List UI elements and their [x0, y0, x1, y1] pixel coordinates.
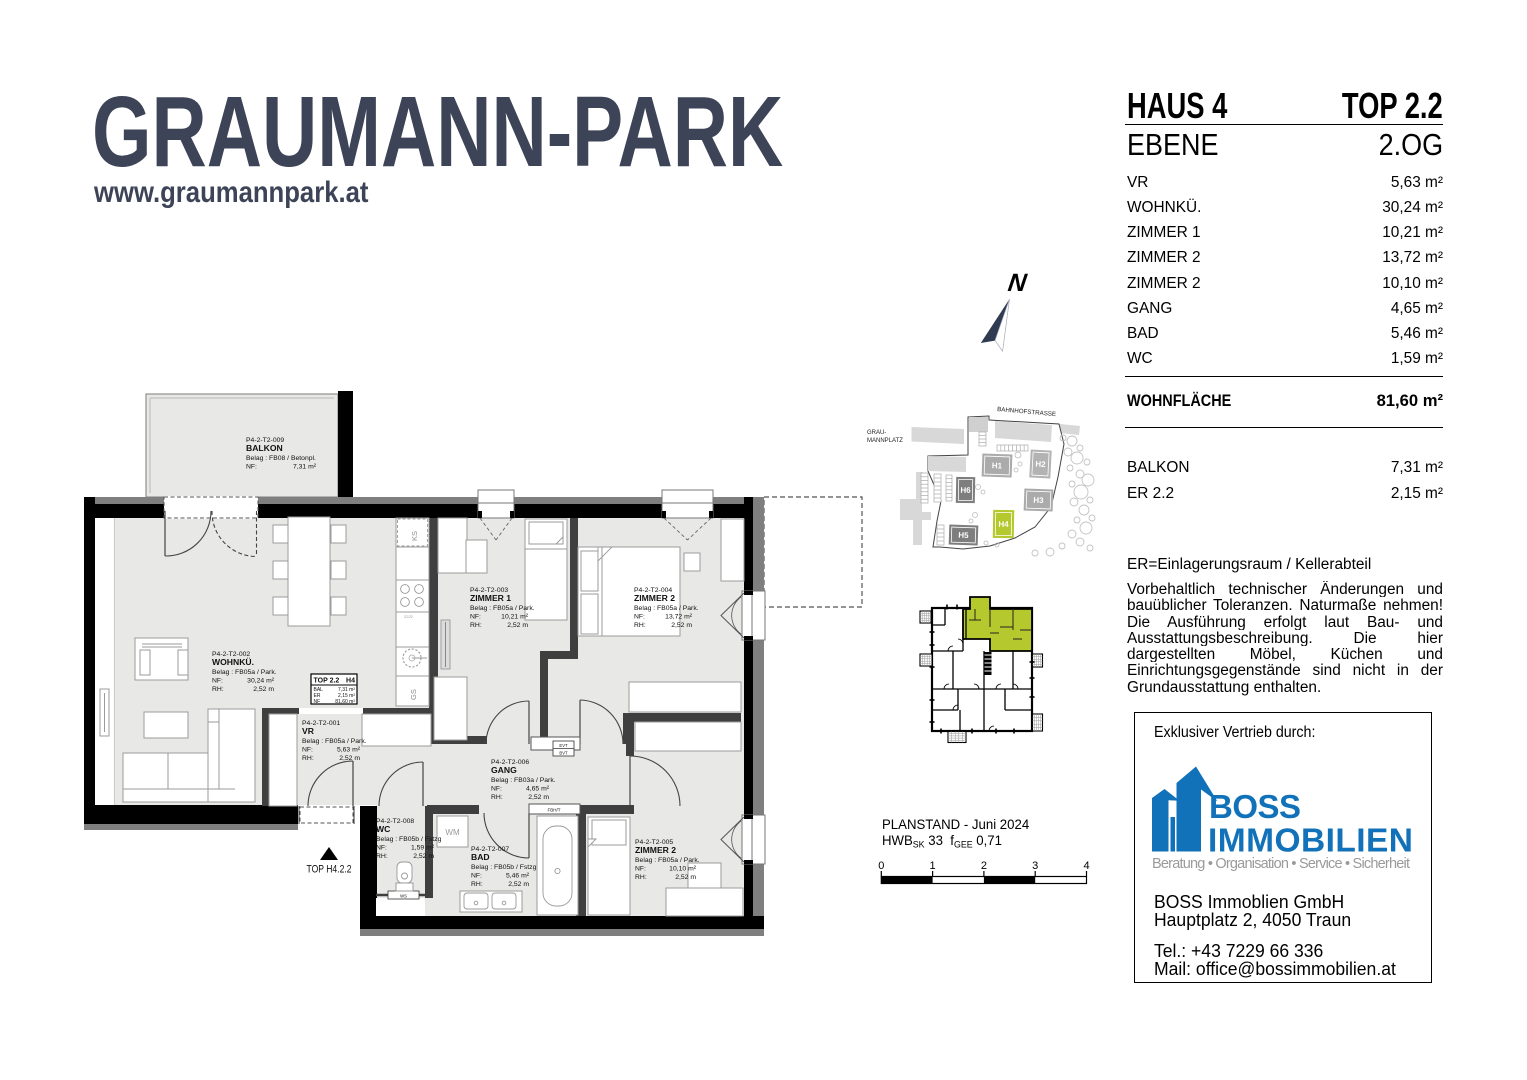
- svg-text:NF:: NF:: [471, 873, 482, 880]
- svg-text:2,52 m: 2,52 m: [413, 853, 434, 860]
- svg-text:Belag : FB05a / Park.: Belag : FB05a / Park.: [634, 605, 699, 612]
- svg-text:TOP H4.2.2: TOP H4.2.2: [307, 864, 352, 876]
- svg-text:Belag : FB05a / Park.: Belag : FB05a / Park.: [212, 669, 277, 676]
- svg-text:NF:: NF:: [246, 464, 257, 471]
- svg-text:Belag : FB05b / Fstzg: Belag : FB05b / Fstzg: [471, 864, 537, 871]
- svg-text:H5: H5: [958, 531, 969, 540]
- svg-text:RH:: RH:: [634, 622, 646, 629]
- svg-text:NF:: NF:: [634, 614, 645, 621]
- svg-text:NF:: NF:: [212, 678, 223, 685]
- svg-text:H1: H1: [992, 461, 1003, 470]
- svg-text:Belag : FB05a / Park.: Belag : FB05a / Park.: [470, 605, 535, 612]
- svg-text:BVT: BVT: [559, 751, 568, 756]
- svg-text:GS: GS: [409, 689, 418, 700]
- svg-text:NF:: NF:: [376, 845, 387, 852]
- svg-text:GANG: GANG: [491, 765, 517, 775]
- svg-text:Belag : FB05a / Park.: Belag : FB05a / Park.: [302, 738, 367, 745]
- svg-text:TOP 2.2: TOP 2.2: [314, 678, 340, 685]
- svg-text:MANNPLATZ: MANNPLATZ: [867, 438, 903, 444]
- svg-text:KS: KS: [410, 531, 419, 541]
- svg-text:BAD: BAD: [471, 852, 490, 862]
- svg-text:WM: WM: [445, 828, 460, 837]
- svg-text:RH:: RH:: [212, 686, 224, 693]
- svg-text:NF:: NF:: [491, 786, 502, 793]
- svg-text:13,72 m²: 13,72 m²: [665, 614, 693, 621]
- svg-text:2,52 m: 2,52 m: [507, 622, 528, 629]
- svg-text:NF:: NF:: [470, 614, 481, 621]
- svg-text:Belag : FB03a / Park.: Belag : FB03a / Park.: [491, 777, 556, 784]
- svg-text:BOSS: BOSS: [1209, 788, 1301, 825]
- svg-text:RH:: RH:: [635, 874, 647, 881]
- svg-text:RH:: RH:: [470, 622, 482, 629]
- svg-text:H2: H2: [1035, 460, 1046, 470]
- svg-text:2,52 m: 2,52 m: [671, 622, 692, 629]
- svg-text:RH:: RH:: [302, 755, 314, 762]
- svg-text:2,52 m: 2,52 m: [339, 755, 360, 762]
- svg-text:BALKON: BALKON: [246, 443, 283, 453]
- svg-text:Beratung • Organisation • Serv: Beratung • Organisation • Service • Sich…: [1152, 856, 1410, 872]
- svg-text:ZIMMER 2: ZIMMER 2: [635, 845, 676, 855]
- svg-text:1: 1: [930, 860, 936, 872]
- svg-text:7,31 m²: 7,31 m²: [293, 464, 317, 471]
- svg-text:5,63 m²: 5,63 m²: [337, 747, 361, 754]
- svg-text:H4: H4: [998, 520, 1009, 529]
- svg-text:H6: H6: [960, 486, 971, 495]
- svg-text:H3: H3: [1033, 496, 1044, 505]
- svg-text:2,52 m: 2,52 m: [528, 794, 549, 801]
- svg-text:5,46 m²: 5,46 m²: [506, 873, 530, 880]
- svg-text:WC: WC: [376, 824, 390, 834]
- svg-text:RH:: RH:: [376, 853, 388, 860]
- svg-text:2,52 m: 2,52 m: [675, 874, 696, 881]
- svg-text:1,59 m²: 1,59 m²: [411, 845, 435, 852]
- svg-text:ZIMMER 1: ZIMMER 1: [470, 593, 511, 603]
- svg-text:Belag : FB05a / Park.: Belag : FB05a / Park.: [635, 857, 700, 864]
- svg-text:2,52 m: 2,52 m: [508, 881, 529, 888]
- svg-text:0: 0: [878, 860, 884, 872]
- svg-text:WOHNKÜ.: WOHNKÜ.: [212, 657, 254, 667]
- svg-text:FBH/T: FBH/T: [548, 808, 561, 813]
- svg-text:RH:: RH:: [491, 794, 503, 801]
- svg-text:NF:: NF:: [635, 866, 646, 873]
- svg-text:30,24 m²: 30,24 m²: [247, 678, 275, 685]
- svg-text:NF:: NF:: [302, 747, 313, 754]
- svg-text:WS: WS: [400, 893, 407, 898]
- svg-text:10,21 m²: 10,21 m²: [501, 614, 529, 621]
- svg-text:RH:: RH:: [471, 881, 483, 888]
- svg-text:VR: VR: [302, 726, 315, 736]
- svg-text:IMMOBILIEN: IMMOBILIEN: [1208, 823, 1413, 860]
- svg-text:Belag : FB05b / Fstzg: Belag : FB05b / Fstzg: [376, 836, 442, 843]
- svg-text:BAHNHOFSTRASSE: BAHNHOFSTRASSE: [997, 406, 1057, 418]
- svg-text:81,60 m²: 81,60 m²: [335, 699, 355, 705]
- svg-text:10,10 m²: 10,10 m²: [669, 866, 697, 873]
- svg-text:3: 3: [1032, 860, 1038, 872]
- svg-text:2222: 2222: [404, 614, 414, 619]
- svg-text:EVT: EVT: [559, 743, 568, 748]
- svg-text:2,52 m: 2,52 m: [253, 686, 274, 693]
- svg-text:ZIMMER 2: ZIMMER 2: [634, 593, 675, 603]
- svg-text:4: 4: [1083, 860, 1089, 872]
- svg-text:NF: NF: [314, 699, 321, 705]
- svg-text:GRAU-: GRAU-: [867, 430, 886, 436]
- svg-text:Belag : FB08 / Betonpl.: Belag : FB08 / Betonpl.: [246, 455, 316, 462]
- svg-text:N: N: [1006, 269, 1029, 297]
- svg-text:H4: H4: [346, 678, 355, 685]
- svg-text:2: 2: [981, 860, 987, 872]
- svg-text:4,65 m²: 4,65 m²: [526, 786, 550, 793]
